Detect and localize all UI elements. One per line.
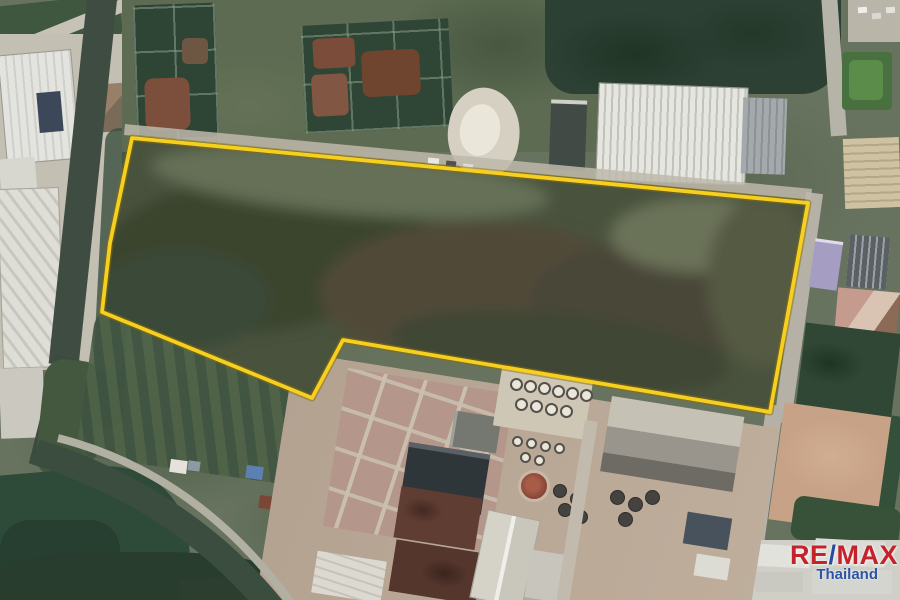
tank	[512, 436, 523, 447]
car-3	[886, 7, 895, 14]
forest-top-right	[545, 0, 841, 94]
tank	[560, 405, 573, 418]
farm-pond-brown-b1	[312, 37, 356, 69]
tan-warehouse-right	[843, 137, 900, 209]
dark-tank	[610, 490, 625, 505]
factory-top-right-gray	[741, 97, 788, 174]
satellite-map: RE/MAX Thailand	[0, 0, 900, 600]
farm-pond-brown-a1	[144, 77, 191, 131]
farm-pond-brown-b2	[361, 49, 421, 98]
dark-shed-top	[549, 99, 587, 170]
sports-field-lawn	[849, 60, 883, 100]
tank	[552, 385, 565, 398]
car-2	[872, 13, 881, 20]
dark-tank	[553, 484, 567, 498]
tank	[515, 398, 528, 411]
tank	[540, 441, 551, 452]
house-gray	[187, 460, 200, 472]
house-blue	[245, 465, 264, 480]
tank	[510, 378, 523, 391]
tank	[524, 380, 537, 393]
striped-dark-building	[846, 234, 890, 289]
car-1	[858, 7, 867, 14]
dark-tank	[618, 512, 633, 527]
dark-tank	[628, 497, 643, 512]
tank	[520, 452, 531, 463]
tank	[538, 382, 551, 395]
remax-wordmark: RE/MAX	[788, 542, 898, 569]
tank	[545, 403, 558, 416]
tank	[580, 389, 593, 402]
large-rust-tank	[518, 470, 550, 502]
tank	[530, 400, 543, 413]
solar-panels	[36, 91, 63, 133]
dark-tank	[645, 490, 660, 505]
truck-2	[446, 160, 457, 167]
house-white-1	[169, 459, 188, 474]
tank	[534, 455, 545, 466]
farm-pond-brown-b3	[311, 73, 349, 117]
truck-3	[463, 163, 474, 170]
farm-pond-brown-a2	[182, 38, 208, 64]
tank	[526, 438, 537, 449]
truck-1	[428, 157, 440, 164]
tank	[554, 443, 565, 454]
blue-gray-building	[683, 512, 732, 551]
tank	[566, 387, 579, 400]
remax-watermark: RE/MAX Thailand	[788, 542, 898, 582]
